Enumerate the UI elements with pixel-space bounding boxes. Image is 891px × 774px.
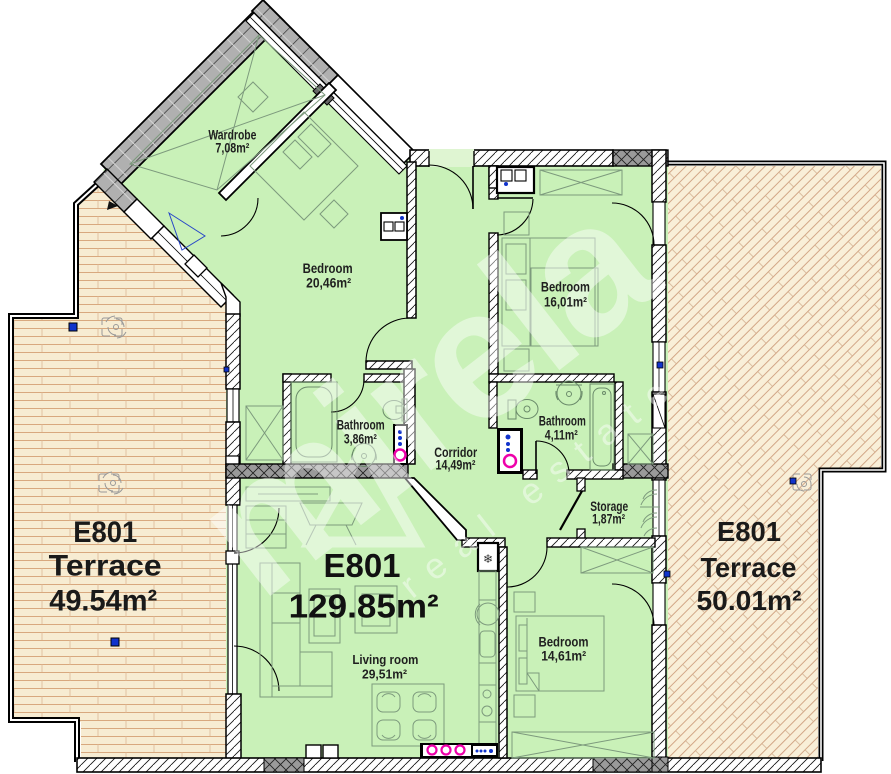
svg-text:14,61m²: 14,61m² [541,648,586,663]
svg-text:20,46m²: 20,46m² [306,276,351,291]
svg-text:7,08m²: 7,08m² [215,141,249,156]
svg-text:Living room: Living room [352,653,418,667]
svg-text:Bedroom: Bedroom [541,279,590,294]
svg-text:14,49m²: 14,49m² [436,457,476,472]
svg-text:Terrace: Terrace [49,550,162,583]
svg-text:1,87m²: 1,87m² [592,511,625,526]
svg-text:29,51m²: 29,51m² [362,668,407,682]
svg-text:Bedroom: Bedroom [303,261,353,276]
svg-text:E801: E801 [324,547,401,584]
svg-text:4,11m²: 4,11m² [545,427,578,442]
svg-text:3,86m²: 3,86m² [344,432,377,447]
svg-text:129.85m²: 129.85m² [289,587,439,624]
svg-text:49.54m²: 49.54m² [49,584,157,617]
svg-text:Terrace: Terrace [701,552,797,583]
svg-text:E801: E801 [73,516,137,549]
svg-text:Bathroom: Bathroom [337,418,385,433]
svg-text:Bedroom: Bedroom [539,634,589,649]
svg-text:❄: ❄ [483,552,493,566]
svg-text:50.01m²: 50.01m² [697,585,802,616]
svg-text:E801: E801 [717,516,781,547]
svg-text:16,01m²: 16,01m² [544,295,587,310]
